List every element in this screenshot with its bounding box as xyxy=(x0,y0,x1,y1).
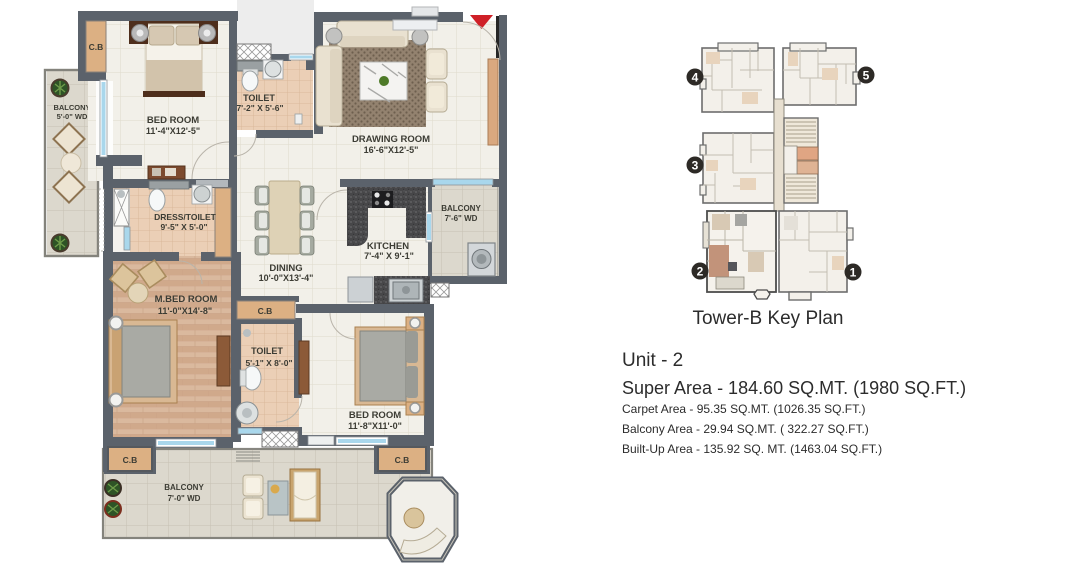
svg-text:DRAWING ROOM: DRAWING ROOM xyxy=(352,134,430,145)
svg-text:BALCONY: BALCONY xyxy=(164,483,204,492)
svg-text:BED ROOM: BED ROOM xyxy=(349,410,401,421)
svg-text:Balcony Area - 29.94 SQ.MT. (: Balcony Area - 29.94 SQ.MT. ( 322.27 SQ.… xyxy=(622,422,869,436)
svg-text:11'-4"X12'-5": 11'-4"X12'-5" xyxy=(146,126,200,136)
svg-text:TOILET: TOILET xyxy=(243,93,275,103)
svg-text:Super Area - 184.60 SQ.MT. (19: Super Area - 184.60 SQ.MT. (1980 SQ.FT.) xyxy=(622,378,966,398)
svg-text:5'-0" WD: 5'-0" WD xyxy=(57,112,88,121)
svg-text:C.B: C.B xyxy=(123,455,138,465)
svg-text:11'-0"X14'-8": 11'-0"X14'-8" xyxy=(158,306,212,316)
svg-text:7'-0" WD: 7'-0" WD xyxy=(168,494,201,503)
svg-text:DRESS/TOILET: DRESS/TOILET xyxy=(154,212,217,222)
svg-text:5'-1" X 8'-0": 5'-1" X 8'-0" xyxy=(245,358,292,368)
svg-text:16'-6"X12'-5": 16'-6"X12'-5" xyxy=(364,145,419,155)
svg-text:TOILET: TOILET xyxy=(251,346,283,356)
svg-text:Built-Up Area - 135.92 SQ. MT.: Built-Up Area - 135.92 SQ. MT. (1463.04 … xyxy=(622,442,882,456)
svg-text:Unit - 2: Unit - 2 xyxy=(622,350,683,371)
svg-text:C.B: C.B xyxy=(89,42,104,52)
svg-text:4: 4 xyxy=(692,71,699,85)
svg-text:7'-4" X 9'-1": 7'-4" X 9'-1" xyxy=(364,251,414,261)
svg-text:1: 1 xyxy=(850,266,857,280)
svg-text:2: 2 xyxy=(697,265,704,279)
svg-text:Carpet Area - 95.35 SQ.MT. (10: Carpet Area - 95.35 SQ.MT. (1026.35 SQ.F… xyxy=(622,402,865,416)
svg-text:BALCONY: BALCONY xyxy=(53,103,90,112)
svg-text:M.BED ROOM: M.BED ROOM xyxy=(155,294,218,305)
svg-text:5: 5 xyxy=(863,69,870,83)
svg-text:11'-8"X11'-0": 11'-8"X11'-0" xyxy=(348,421,402,431)
svg-text:9'-5" X 5'-0": 9'-5" X 5'-0" xyxy=(160,222,207,232)
svg-text:7'-6" WD: 7'-6" WD xyxy=(445,214,478,223)
svg-text:10'-0"X13'-4": 10'-0"X13'-4" xyxy=(259,273,314,283)
svg-text:7'-2" X 5'-6": 7'-2" X 5'-6" xyxy=(236,103,283,113)
svg-text:BED ROOM: BED ROOM xyxy=(147,115,199,126)
svg-text:C.B: C.B xyxy=(258,306,273,316)
svg-text:C.B: C.B xyxy=(395,455,410,465)
svg-text:3: 3 xyxy=(692,159,699,173)
svg-text:BALCONY: BALCONY xyxy=(441,204,481,213)
svg-text:Tower-B Key Plan: Tower-B Key Plan xyxy=(692,308,843,329)
